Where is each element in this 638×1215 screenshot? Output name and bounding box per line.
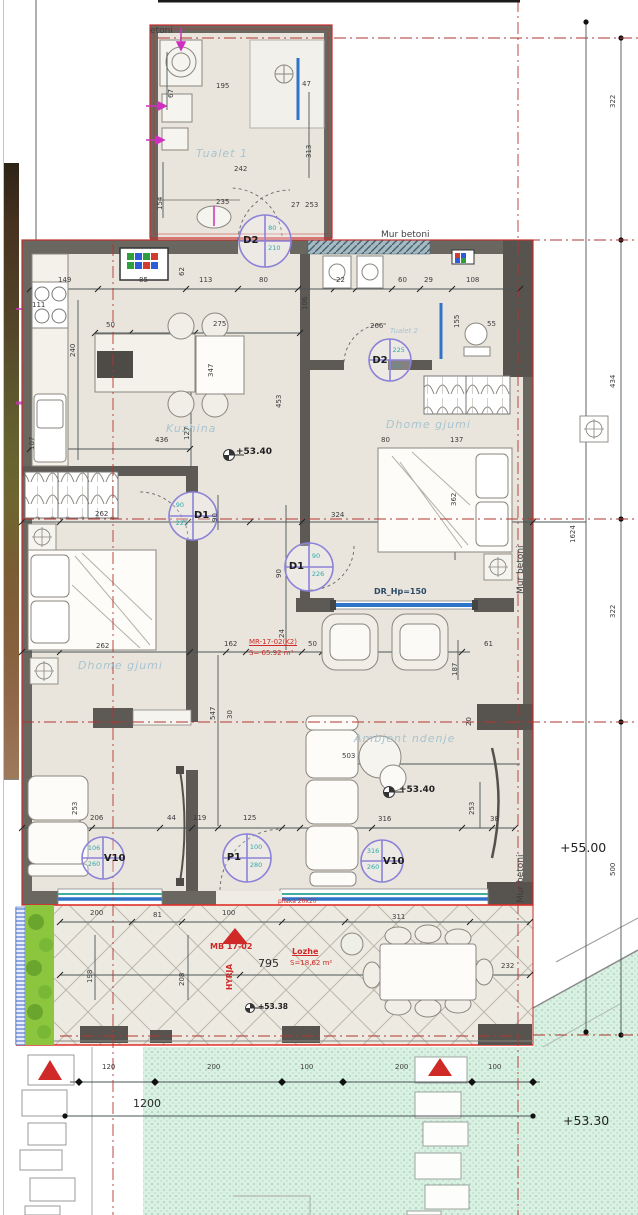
room-label: Tualet 1 <box>196 148 248 159</box>
dim-label: 198 <box>87 970 94 983</box>
dim-label: 240 <box>70 344 77 357</box>
pavers <box>20 1090 75 1215</box>
dim-label: 38 <box>490 816 499 823</box>
dim-label: 80 <box>381 437 390 444</box>
tag-height: 260 <box>367 864 379 871</box>
tag-label: D2 <box>372 356 387 366</box>
dim-label: 162 <box>224 641 237 648</box>
tag-height: 210 <box>268 245 280 252</box>
dim-label: 90 <box>276 569 283 578</box>
dim-label: 1200 <box>133 1098 161 1109</box>
tag-label: D1 <box>194 511 209 521</box>
dim-label: 253 <box>469 802 476 815</box>
level-label: +53.40 <box>236 448 272 457</box>
dim-label: 100 <box>300 1064 313 1071</box>
dim-label: 100 <box>488 1064 501 1071</box>
tag-label: D2 <box>243 236 258 246</box>
opening-tag-v10: V10316260 <box>361 840 403 882</box>
dim-label: 24 <box>279 629 286 638</box>
tag-label: P1 <box>227 853 241 863</box>
dim-label: 232 <box>501 963 514 970</box>
dim-label: 61 <box>484 641 493 648</box>
dim-label: 347 <box>208 364 215 377</box>
dim-label: 235 <box>216 199 229 206</box>
dim-label: 200 <box>207 1064 220 1071</box>
dim-label: 322 <box>610 605 617 618</box>
dim-label: 107 <box>29 437 36 450</box>
tag-label: D1 <box>289 562 304 572</box>
dim-label: 208 <box>179 973 186 986</box>
room-label: Ambjent ndenje <box>354 733 455 744</box>
dim-label: 50 <box>308 641 317 648</box>
dim-label: 453 <box>276 395 283 408</box>
level-label: +53.40 <box>399 786 435 795</box>
dim-label: 67 <box>168 89 175 98</box>
lawn <box>143 1047 638 1215</box>
dim-label: 30 <box>227 710 234 719</box>
dim-label: 155 <box>454 315 461 328</box>
tag-height: 226 <box>312 571 324 578</box>
red-annotation: HYRJA <box>226 964 234 990</box>
dim-label: 27 <box>291 202 300 209</box>
dim-label: 200 <box>90 910 103 917</box>
dim-label: 20 <box>466 717 473 726</box>
dim-label: 81 <box>153 912 162 919</box>
dim-label: 55 <box>487 321 496 328</box>
dim-label: 111 <box>32 302 45 309</box>
tag-height: 80 <box>393 363 401 370</box>
red-annotation: MB 17-02 <box>210 943 252 951</box>
tag-width: 100 <box>250 844 262 851</box>
dim-label: 62 <box>179 267 186 276</box>
tag-height: 280 <box>250 862 262 869</box>
dim-label: 154 <box>157 197 164 210</box>
dim-label: 262 <box>96 643 109 650</box>
wall-label: Mur betoni <box>517 854 526 903</box>
tag-width: 225 <box>393 347 405 354</box>
level-label: +53.30 <box>563 1115 609 1128</box>
dim-label: 362 <box>451 493 458 506</box>
wall-label: Mur betoni <box>517 545 526 594</box>
floor-plan-page: etoniMur betoniMur betoniMur betoniTuale… <box>0 0 638 1215</box>
small-panel <box>452 250 474 264</box>
dim-label: 547 <box>210 707 217 720</box>
tag-height: 225 <box>176 520 188 527</box>
dim-label: 100 <box>222 910 235 917</box>
opening-tag-v10: V10106260 <box>82 837 124 879</box>
dim-label: 200 <box>395 1064 408 1071</box>
dim-label: 436 <box>155 437 168 444</box>
tag-width: 316 <box>367 848 379 855</box>
dim-label: 195 <box>216 83 229 90</box>
tag-height: 260 <box>88 861 100 868</box>
dim-label: 266 <box>370 323 383 330</box>
dim-label: 187 <box>452 663 459 676</box>
wall-label: Mur betoni <box>381 231 430 240</box>
room-label: Kuzhina <box>166 423 216 434</box>
dim-label: 125 <box>243 815 256 822</box>
dim-label: 106 <box>302 297 309 310</box>
opening-tag-d2: D222580 <box>369 339 411 381</box>
opening-tag-d1: D190226 <box>285 543 333 591</box>
dim-label: 127 <box>184 427 191 440</box>
floor-plan-drawing <box>0 0 638 1215</box>
hedge <box>25 905 54 1045</box>
tag-width: 90 <box>176 502 184 509</box>
dim-label: 44 <box>167 815 176 822</box>
room-label: Tualet 2 <box>390 328 418 335</box>
dim-label: 316 <box>378 816 391 823</box>
opening-tag-d1: D190225 <box>169 492 217 540</box>
level-label: +53.38 <box>258 1003 288 1011</box>
dim-label: 47 <box>302 81 311 88</box>
dim-label: 206 <box>90 815 103 822</box>
dim-label: 50 <box>106 322 115 329</box>
red-annotation: S= 65.92 m² <box>249 650 293 657</box>
dim-label: 85 <box>139 277 148 284</box>
dim-label: 313 <box>306 145 313 158</box>
opening-tag-p1: P1100280 <box>223 834 271 882</box>
dim-label: 120 <box>102 1064 115 1071</box>
dim-label: 500 <box>610 863 617 876</box>
wall-label: etoni <box>150 27 173 36</box>
dim-label: 311 <box>392 914 405 921</box>
red-annotation: MR-17-02(K2) <box>249 639 297 646</box>
dim-label: 29 <box>424 277 433 284</box>
dim-label: 137 <box>450 437 463 444</box>
tag-label: V10 <box>104 854 126 864</box>
dim-label: 1624 <box>570 525 577 543</box>
dim-label: 80 <box>259 277 268 284</box>
dim-label: 795 <box>258 958 279 969</box>
dim-label: 113 <box>199 277 212 284</box>
tag-label: V10 <box>383 857 405 867</box>
dim-label: 275 <box>213 321 226 328</box>
dim-label: 262 <box>95 511 108 518</box>
dim-label: 242 <box>234 166 247 173</box>
room-label: Dhome gjumi <box>386 419 471 430</box>
red-annotation: Lozhe <box>292 948 318 956</box>
red-annotation: S=18.62 m² <box>290 960 332 967</box>
dim-label: 253 <box>72 802 79 815</box>
dim-label: 322 <box>610 95 617 108</box>
window-label: DR_Hp=150 <box>374 588 427 596</box>
room-label: Dhome gjumi <box>78 660 163 671</box>
dim-label: 149 <box>58 277 71 284</box>
dim-label: 434 <box>610 375 617 388</box>
dim-label: 253 <box>305 202 318 209</box>
tag-width: 80 <box>268 225 276 232</box>
dim-label: 119 <box>193 815 206 822</box>
opening-tag-d2: D280210 <box>239 215 291 267</box>
tag-width: 90 <box>312 553 320 560</box>
dim-label: 324 <box>331 512 344 519</box>
dim-label: 22 <box>336 277 345 284</box>
dim-label: 108 <box>466 277 479 284</box>
red-annotation: pllaka 20x20 <box>278 899 317 905</box>
dim-label: 60 <box>398 277 407 284</box>
tag-width: 106 <box>88 845 100 852</box>
dim-label: 503 <box>342 753 355 760</box>
level-label: +55.00 <box>560 842 606 855</box>
planter-strip <box>16 907 25 1045</box>
